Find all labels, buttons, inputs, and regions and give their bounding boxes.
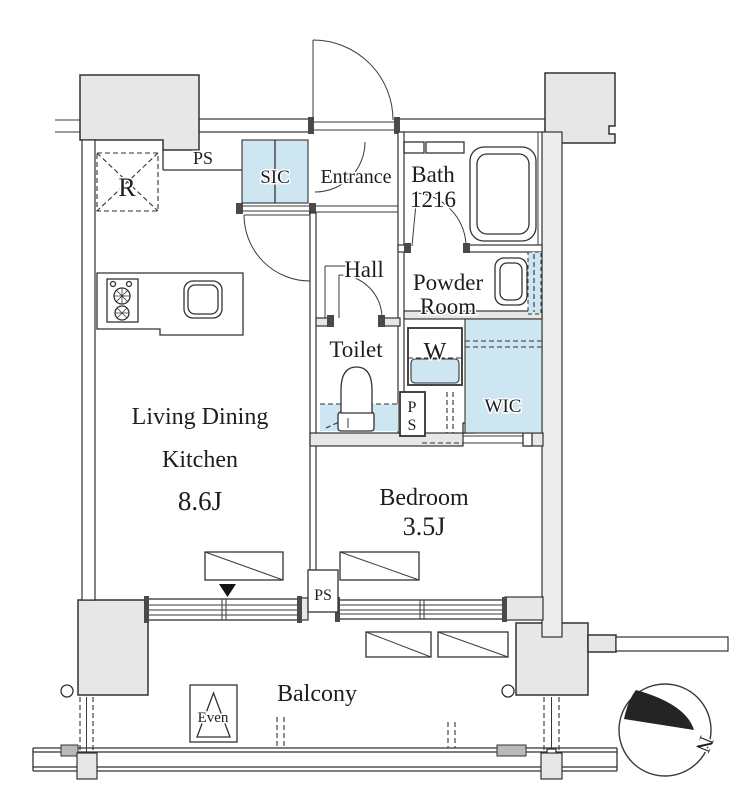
fridge-label: R bbox=[118, 173, 136, 202]
floor-plan-drawing: N Living Dining Kitchen 8.6J Bedroom 3.5… bbox=[0, 0, 732, 800]
compass: N bbox=[619, 684, 719, 776]
entrance-label: Entrance bbox=[320, 166, 391, 188]
wic-label: WIC bbox=[485, 396, 522, 417]
wic-jamb-step-right bbox=[523, 433, 532, 446]
wall-left bbox=[82, 140, 95, 600]
powder-label-line2: Room bbox=[420, 294, 476, 319]
kitchen-counter bbox=[97, 273, 243, 335]
ldk-label-line1: Living Dining bbox=[132, 404, 269, 430]
ps-top-label: PS bbox=[193, 148, 213, 168]
ldk-window-jamb-right bbox=[297, 596, 302, 623]
bedroom-size-label: 3.5J bbox=[403, 512, 446, 541]
pillar-top-left bbox=[80, 75, 199, 150]
bath-jamb-left bbox=[404, 243, 411, 253]
floor-plan-page: N Living Dining Kitchen 8.6J Bedroom 3.5… bbox=[0, 0, 732, 800]
burner-1-grate bbox=[114, 288, 130, 304]
ps-mid-label-s: S bbox=[408, 417, 417, 434]
party-wall-right bbox=[616, 637, 728, 651]
bedroom-window bbox=[335, 597, 507, 622]
bathtub bbox=[470, 147, 536, 241]
ldk-size-label: 8.6J bbox=[178, 486, 222, 516]
toilet-bowl bbox=[341, 367, 372, 413]
balcony-label: Balcony bbox=[277, 681, 357, 707]
drain-right bbox=[502, 685, 514, 697]
partition-right-block bbox=[541, 753, 562, 779]
wall-central-vertical bbox=[310, 213, 316, 570]
ldk-window-jamb-left bbox=[144, 596, 149, 623]
ps-mid-label-p: P bbox=[408, 399, 417, 416]
bath-shelf-1 bbox=[404, 142, 424, 153]
bath-label: Bath bbox=[411, 162, 455, 187]
hall-label: Hall bbox=[344, 257, 384, 282]
ps-bottom-label: PS bbox=[314, 587, 332, 604]
toilet-label: Toilet bbox=[329, 337, 383, 362]
ldk-window bbox=[144, 596, 302, 623]
ldk-label-line2: Kitchen bbox=[162, 447, 238, 473]
wall-right bbox=[542, 132, 562, 637]
bedroom-top-wall-left bbox=[310, 433, 463, 446]
wall-entrance-bath bbox=[398, 132, 404, 433]
powder-sink bbox=[495, 258, 527, 305]
vanity-bowl bbox=[500, 263, 522, 300]
wall-bottom-right bbox=[505, 597, 543, 620]
entrance-opening bbox=[314, 117, 394, 134]
bath-jamb-right bbox=[463, 243, 470, 253]
partition-right-base bbox=[497, 745, 526, 756]
bathtub-inner bbox=[477, 154, 529, 234]
powder-label-line1: Powder bbox=[413, 270, 484, 295]
ldk-door-swing bbox=[244, 215, 310, 281]
bedroom-window-jamb-right bbox=[502, 597, 507, 622]
toilet-jamb-left bbox=[327, 315, 334, 327]
bath-shelf-2 bbox=[426, 142, 464, 153]
bath-size-label: 1216 bbox=[410, 187, 456, 212]
sic-wall-end-right bbox=[309, 203, 316, 214]
toilet-fixture bbox=[320, 367, 398, 431]
pillar-bottom-left bbox=[78, 600, 148, 695]
partition-left-block bbox=[77, 753, 97, 779]
partition-left-base bbox=[61, 745, 78, 756]
bath-door-opening bbox=[411, 243, 464, 254]
sic-label: SIC bbox=[260, 167, 290, 188]
washer-label: W bbox=[424, 339, 447, 365]
drain-left bbox=[61, 685, 73, 697]
front-door-swing bbox=[313, 40, 393, 120]
hatch-label: Even bbox=[198, 710, 229, 726]
toilet-tank bbox=[338, 412, 374, 431]
bedroom-label: Bedroom bbox=[379, 485, 469, 511]
entry-marker-triangle bbox=[219, 584, 236, 597]
pillar-bottom-right-stub bbox=[588, 635, 616, 652]
sic-wall-end-left bbox=[236, 203, 243, 214]
